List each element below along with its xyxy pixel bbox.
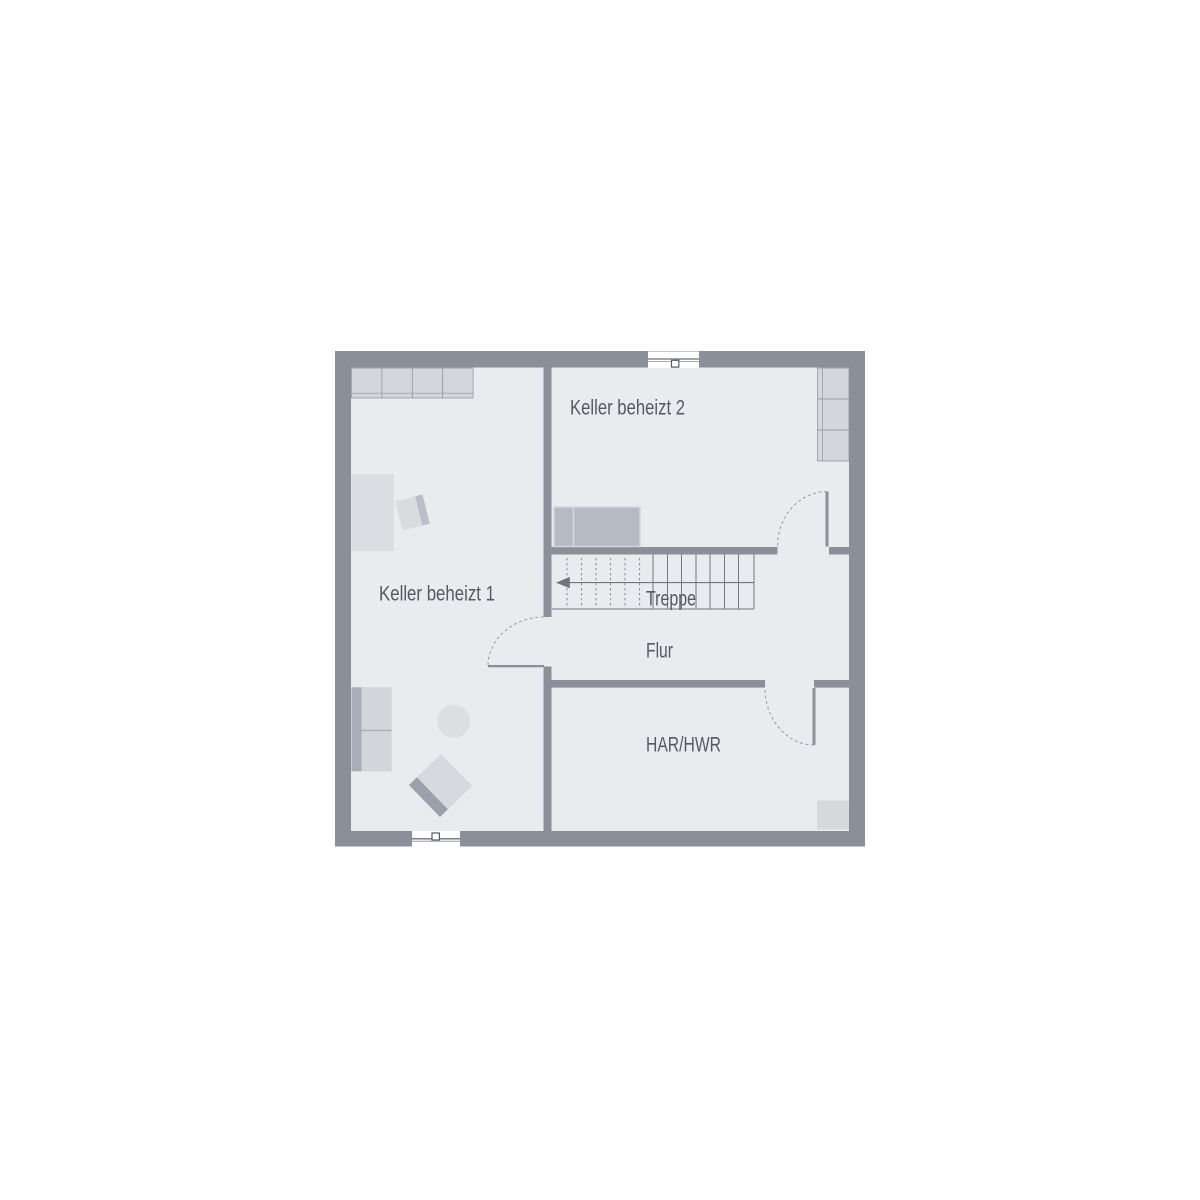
- svg-text:Keller beheizt 1: Keller beheizt 1: [379, 582, 495, 605]
- svg-text:HAR/HWR: HAR/HWR: [646, 733, 721, 756]
- svg-text:Keller beheizt 2: Keller beheizt 2: [570, 396, 685, 419]
- svg-text:Treppe: Treppe: [646, 588, 696, 611]
- svg-text:Flur: Flur: [646, 639, 673, 662]
